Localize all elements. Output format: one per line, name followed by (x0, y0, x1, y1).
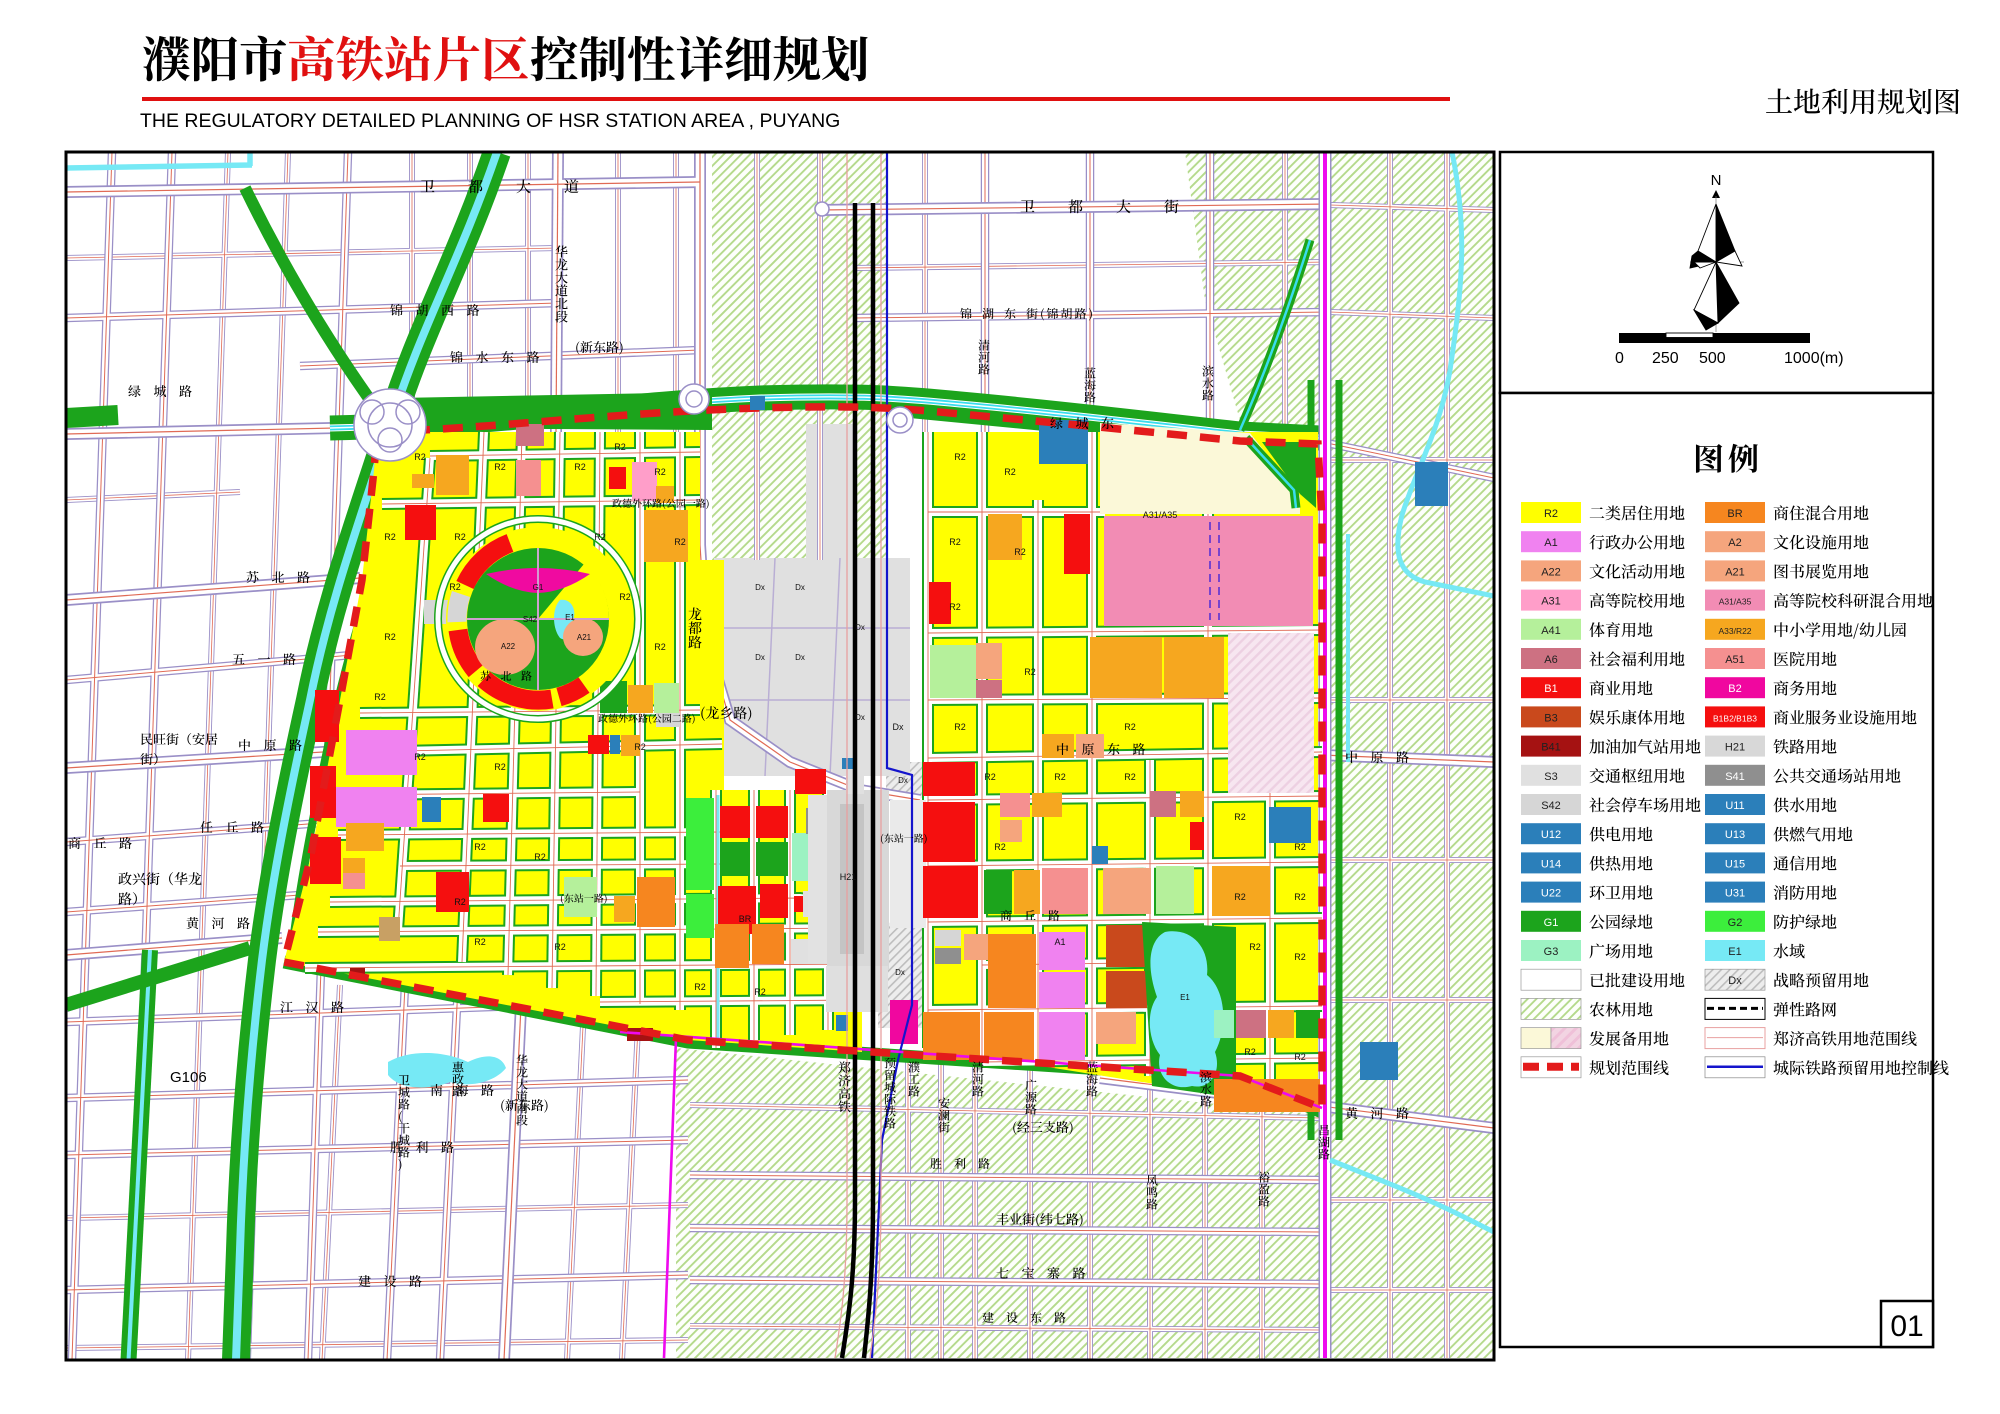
svg-text:R2: R2 (1234, 812, 1246, 822)
svg-text:R2: R2 (384, 632, 396, 642)
svg-text:BR: BR (1727, 508, 1742, 520)
svg-text:G1: G1 (1544, 917, 1559, 929)
svg-text:R2: R2 (574, 462, 586, 472)
svg-text:R2: R2 (654, 642, 666, 652)
svg-text:A22: A22 (1541, 566, 1561, 578)
svg-text:R2: R2 (954, 452, 966, 462)
svg-text:A22: A22 (501, 642, 516, 651)
svg-text:R2: R2 (694, 982, 706, 992)
svg-text:S42: S42 (1541, 800, 1561, 812)
svg-text:G1: G1 (533, 583, 544, 592)
svg-text:R2: R2 (614, 442, 626, 452)
svg-text:R2: R2 (949, 602, 961, 612)
svg-text:R2: R2 (1124, 722, 1136, 732)
svg-text:A51: A51 (1725, 654, 1745, 666)
svg-text:B2: B2 (1728, 683, 1741, 695)
svg-text:R2: R2 (1024, 667, 1036, 677)
svg-text:1000(m): 1000(m) (1784, 350, 1844, 367)
svg-text:S3: S3 (1544, 771, 1557, 783)
svg-text:G3: G3 (1544, 946, 1559, 958)
svg-text:Dx: Dx (755, 653, 765, 662)
svg-text:500: 500 (1699, 350, 1726, 367)
svg-text:R2: R2 (1234, 892, 1246, 902)
svg-text:R2: R2 (1294, 842, 1306, 852)
svg-text:R2: R2 (414, 452, 426, 462)
svg-text:R2: R2 (634, 742, 646, 752)
svg-text:R2: R2 (1054, 772, 1066, 782)
svg-text:Dx: Dx (893, 722, 904, 732)
svg-text:U31: U31 (1725, 888, 1745, 900)
svg-text:R2: R2 (674, 537, 686, 547)
svg-text:G106: G106 (170, 1069, 207, 1086)
svg-text:R2: R2 (619, 592, 631, 602)
svg-text:R2: R2 (374, 692, 386, 702)
svg-text:Dx: Dx (795, 653, 805, 662)
svg-text:R2: R2 (1014, 547, 1026, 557)
svg-text:R2: R2 (454, 897, 466, 907)
svg-text:A21: A21 (577, 633, 592, 642)
svg-text:Dx: Dx (795, 583, 805, 592)
svg-text:THE REGULATORY DETAILED PLANNI: THE REGULATORY DETAILED PLANNING OF HSR … (140, 110, 840, 132)
svg-text:A31/A35: A31/A35 (1719, 597, 1752, 607)
svg-text:0: 0 (1615, 350, 1624, 367)
svg-text:BR: BR (739, 914, 752, 924)
svg-text:H21: H21 (840, 872, 857, 882)
svg-text:Dx: Dx (895, 968, 905, 977)
svg-text:R2: R2 (494, 462, 506, 472)
svg-text:B1: B1 (1544, 683, 1557, 695)
svg-text:R2: R2 (654, 467, 666, 477)
svg-text:R2: R2 (449, 582, 461, 592)
svg-text:S41: S41 (1725, 771, 1745, 783)
svg-text:R2: R2 (454, 532, 466, 542)
svg-text:A41: A41 (1541, 625, 1561, 637)
svg-text:B1B2/B1B3: B1B2/B1B3 (1713, 713, 1757, 723)
svg-text:Dx: Dx (1728, 975, 1742, 987)
svg-text:U15: U15 (1725, 858, 1745, 870)
svg-text:G2: G2 (1728, 917, 1743, 929)
svg-text:R2: R2 (949, 537, 961, 547)
svg-text:E1: E1 (565, 613, 575, 622)
svg-text:N: N (1711, 172, 1722, 189)
svg-text:A2: A2 (1728, 537, 1741, 549)
svg-text:U12: U12 (1541, 829, 1561, 841)
svg-text:A31/A35: A31/A35 (1143, 510, 1178, 520)
svg-text:U11: U11 (1725, 800, 1744, 812)
svg-text:R2: R2 (1544, 508, 1558, 520)
svg-text:A6: A6 (1544, 654, 1557, 666)
svg-text:U22: U22 (1541, 888, 1561, 900)
svg-text:U13: U13 (1725, 829, 1745, 841)
svg-text:Dx: Dx (898, 776, 908, 785)
svg-text:A21: A21 (1725, 566, 1745, 578)
svg-text:R2: R2 (994, 842, 1006, 852)
svg-text:R2: R2 (414, 752, 426, 762)
svg-text:B3: B3 (1544, 712, 1557, 724)
svg-text:R2: R2 (494, 762, 506, 772)
svg-text:A1: A1 (1054, 937, 1065, 947)
svg-text:A33/R22: A33/R22 (1718, 626, 1751, 636)
svg-text:R2: R2 (474, 842, 486, 852)
svg-text:R2: R2 (1294, 1052, 1306, 1062)
svg-text:E1: E1 (1728, 946, 1741, 958)
svg-text:R2: R2 (984, 772, 996, 782)
svg-text:B41: B41 (1541, 742, 1561, 754)
svg-text:S42: S42 (523, 615, 538, 624)
svg-text:R2: R2 (954, 722, 966, 732)
svg-text:A31: A31 (1541, 596, 1561, 608)
svg-text:R2: R2 (1004, 467, 1016, 477)
svg-text:250: 250 (1652, 350, 1679, 367)
svg-text:H21: H21 (1725, 742, 1745, 754)
svg-text:R2: R2 (594, 532, 606, 542)
svg-text:R2: R2 (754, 987, 766, 997)
svg-text:A1: A1 (1544, 537, 1557, 549)
svg-text:Dx: Dx (855, 713, 865, 722)
svg-text:R2: R2 (554, 942, 566, 952)
svg-text:R2: R2 (384, 532, 396, 542)
svg-text:R2: R2 (534, 852, 546, 862)
svg-text:01: 01 (1890, 1310, 1923, 1343)
svg-text:E1: E1 (1180, 993, 1190, 1002)
svg-text:U14: U14 (1541, 858, 1561, 870)
svg-text:R2: R2 (1244, 1047, 1256, 1057)
svg-text:R2: R2 (1249, 942, 1261, 952)
svg-text:R2: R2 (474, 937, 486, 947)
svg-text:R2: R2 (1294, 952, 1306, 962)
svg-text:Dx: Dx (855, 623, 865, 632)
svg-text:Dx: Dx (755, 583, 765, 592)
svg-text:R2: R2 (1124, 772, 1136, 782)
svg-text:R2: R2 (1294, 892, 1306, 902)
